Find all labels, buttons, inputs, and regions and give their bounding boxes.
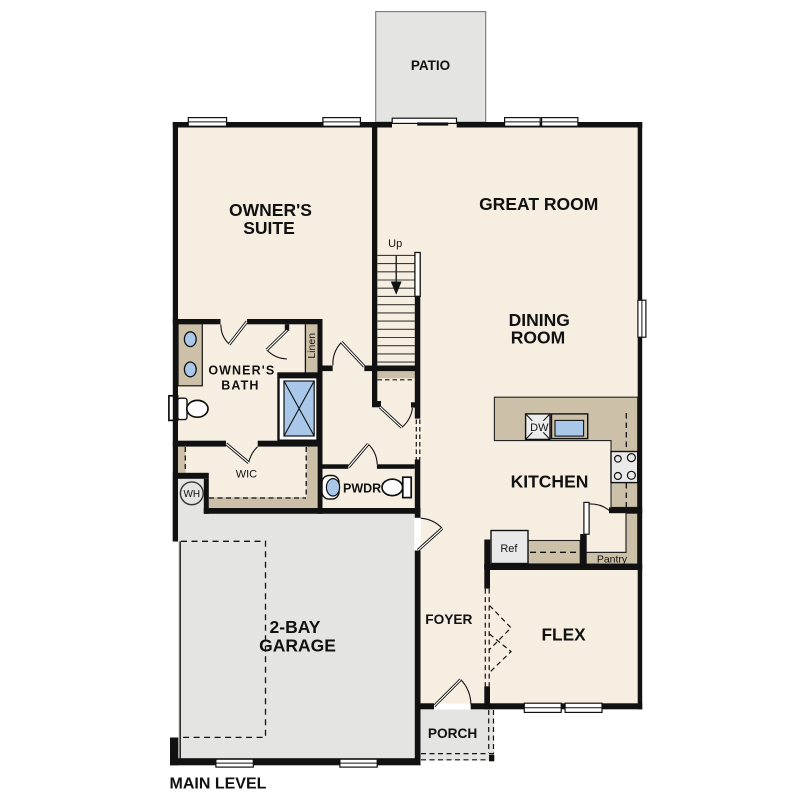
svg-text:DW: DW bbox=[530, 422, 549, 434]
svg-text:PATIO: PATIO bbox=[411, 58, 450, 73]
svg-text:Ref: Ref bbox=[500, 543, 518, 555]
svg-text:OWNER'S: OWNER'S bbox=[208, 364, 275, 378]
svg-text:PWDR: PWDR bbox=[343, 481, 381, 495]
svg-text:GREAT ROOM: GREAT ROOM bbox=[479, 194, 598, 214]
svg-text:GARAGE: GARAGE bbox=[259, 635, 336, 655]
svg-text:Pantry: Pantry bbox=[597, 553, 628, 565]
svg-text:MAIN LEVEL: MAIN LEVEL bbox=[170, 776, 267, 793]
svg-text:2-BAY: 2-BAY bbox=[270, 617, 321, 637]
svg-text:FLEX: FLEX bbox=[542, 624, 587, 644]
svg-text:ROOM: ROOM bbox=[511, 327, 565, 347]
svg-text:Up: Up bbox=[388, 238, 402, 250]
svg-text:SUITE: SUITE bbox=[243, 218, 295, 238]
svg-text:WH: WH bbox=[183, 489, 200, 500]
svg-text:BATH: BATH bbox=[221, 378, 259, 392]
svg-text:WIC: WIC bbox=[236, 468, 257, 480]
svg-text:Linen: Linen bbox=[306, 333, 318, 359]
svg-text:PORCH: PORCH bbox=[428, 726, 477, 741]
svg-text:FOYER: FOYER bbox=[425, 612, 472, 627]
svg-text:KITCHEN: KITCHEN bbox=[511, 472, 589, 492]
